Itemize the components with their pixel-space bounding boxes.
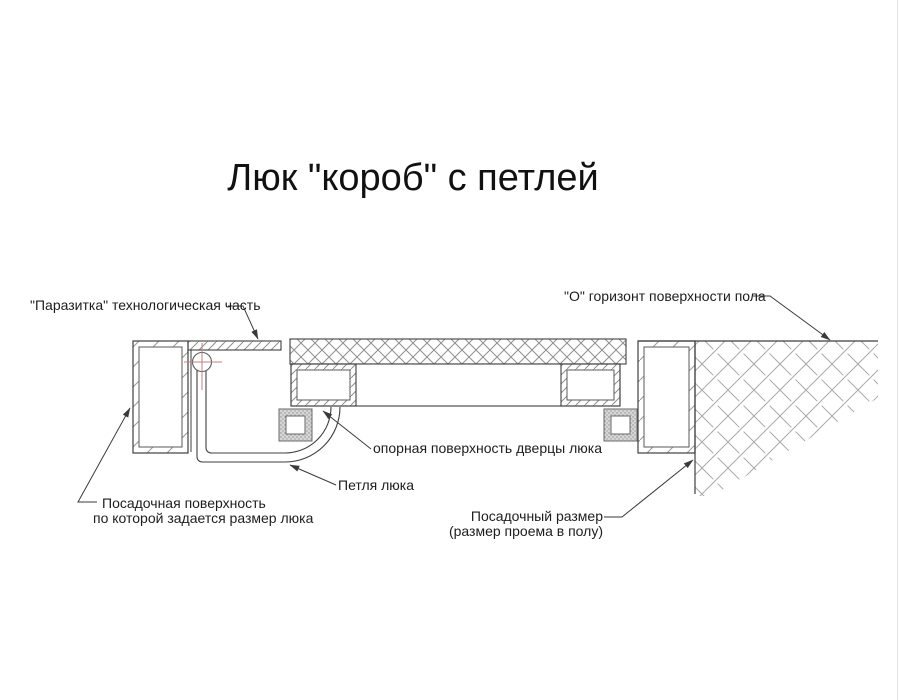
label-support-surface: опорная поверхность дверцы люка [373,441,602,456]
right-support-angle [604,409,637,441]
leader-hinge [290,465,336,485]
left-frame-profile [133,341,188,453]
leader-seating-size [604,460,693,517]
label-seating-size-line1: Посадочный размер [471,508,603,524]
label-seating-size-line2: (размер проема в полу) [423,524,603,539]
label-parasitka: "Паразитка" технологическая часть [30,298,261,313]
door-left-end-profile [291,364,356,406]
leader-seating-surface [78,408,130,502]
hatch-door [290,339,626,406]
label-seating-surface-line1: Посадочная поверхность [102,495,266,511]
door-right-end-profile [561,364,620,406]
label-seating-size: Посадочный размер (размер проема в полу) [423,509,603,539]
drawing-title: Люк "короб" с петлей [227,158,599,198]
technical-drawing-canvas: Люк "короб" с петлей "Паразитка" техноло… [0,0,900,700]
label-hinge: Петля люка [338,478,414,493]
right-frame-profile [638,341,695,453]
label-seating-surface: Посадочная поверхность по которой задает… [93,496,313,526]
hatch-section-drawing [0,0,900,700]
canvas-right-edge [897,0,898,700]
door-tile-strip [290,339,626,364]
label-seating-surface-line2: по которой задается размер люка [93,511,313,526]
left-support-angle [279,409,312,441]
leader-support-surface [323,411,371,449]
label-floor-horizon: "О" горизонт поверхности пола [564,289,766,304]
